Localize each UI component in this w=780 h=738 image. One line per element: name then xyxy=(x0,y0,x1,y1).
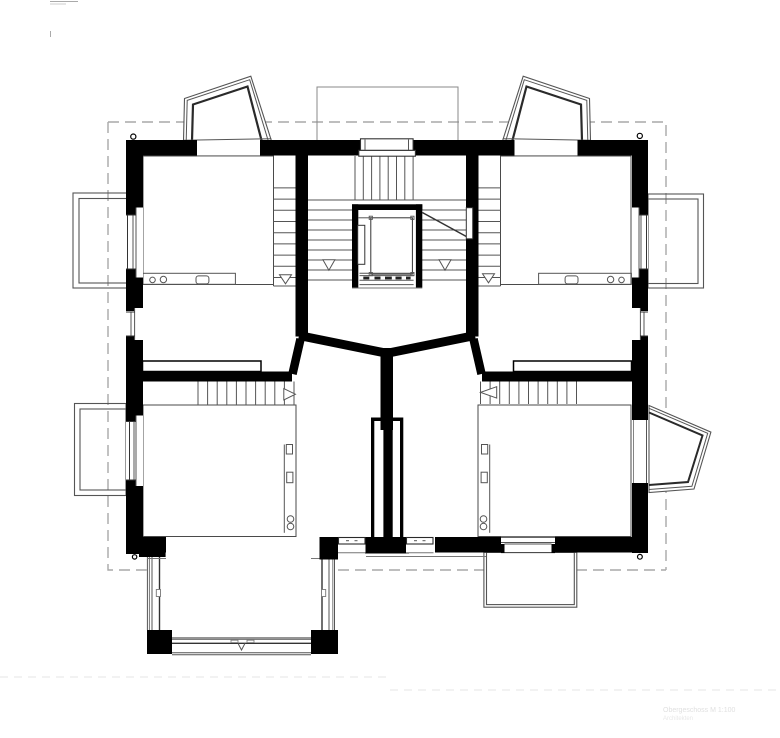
svg-text:Architekten: Architekten xyxy=(663,716,693,722)
svg-text:Obergeschoss M 1:100: Obergeschoss M 1:100 xyxy=(663,707,735,714)
